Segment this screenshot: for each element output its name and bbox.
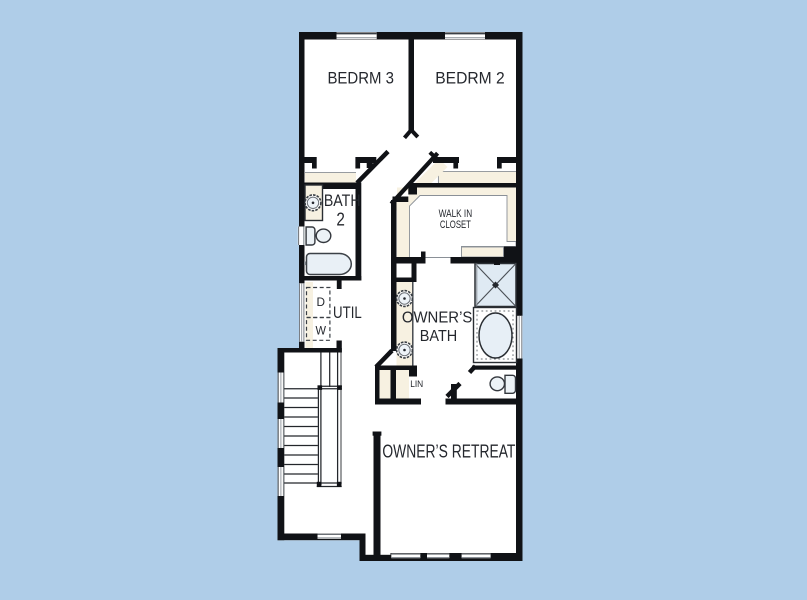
svg-text:OWNER’S: OWNER’S [402, 310, 473, 327]
svg-text:BEDRM 2: BEDRM 2 [435, 68, 505, 87]
svg-text:2: 2 [336, 210, 345, 230]
svg-text:D: D [317, 295, 326, 309]
svg-text:OWNER’S RETREAT: OWNER’S RETREAT [382, 441, 515, 461]
svg-text:BATH: BATH [324, 191, 361, 210]
svg-text:CLOSET: CLOSET [440, 219, 471, 231]
svg-text:LIN: LIN [410, 379, 423, 389]
svg-text:W: W [316, 324, 327, 338]
svg-text:BEDRM 3: BEDRM 3 [327, 68, 394, 87]
svg-text:BATH: BATH [420, 328, 458, 345]
svg-text:UTIL: UTIL [333, 303, 362, 322]
